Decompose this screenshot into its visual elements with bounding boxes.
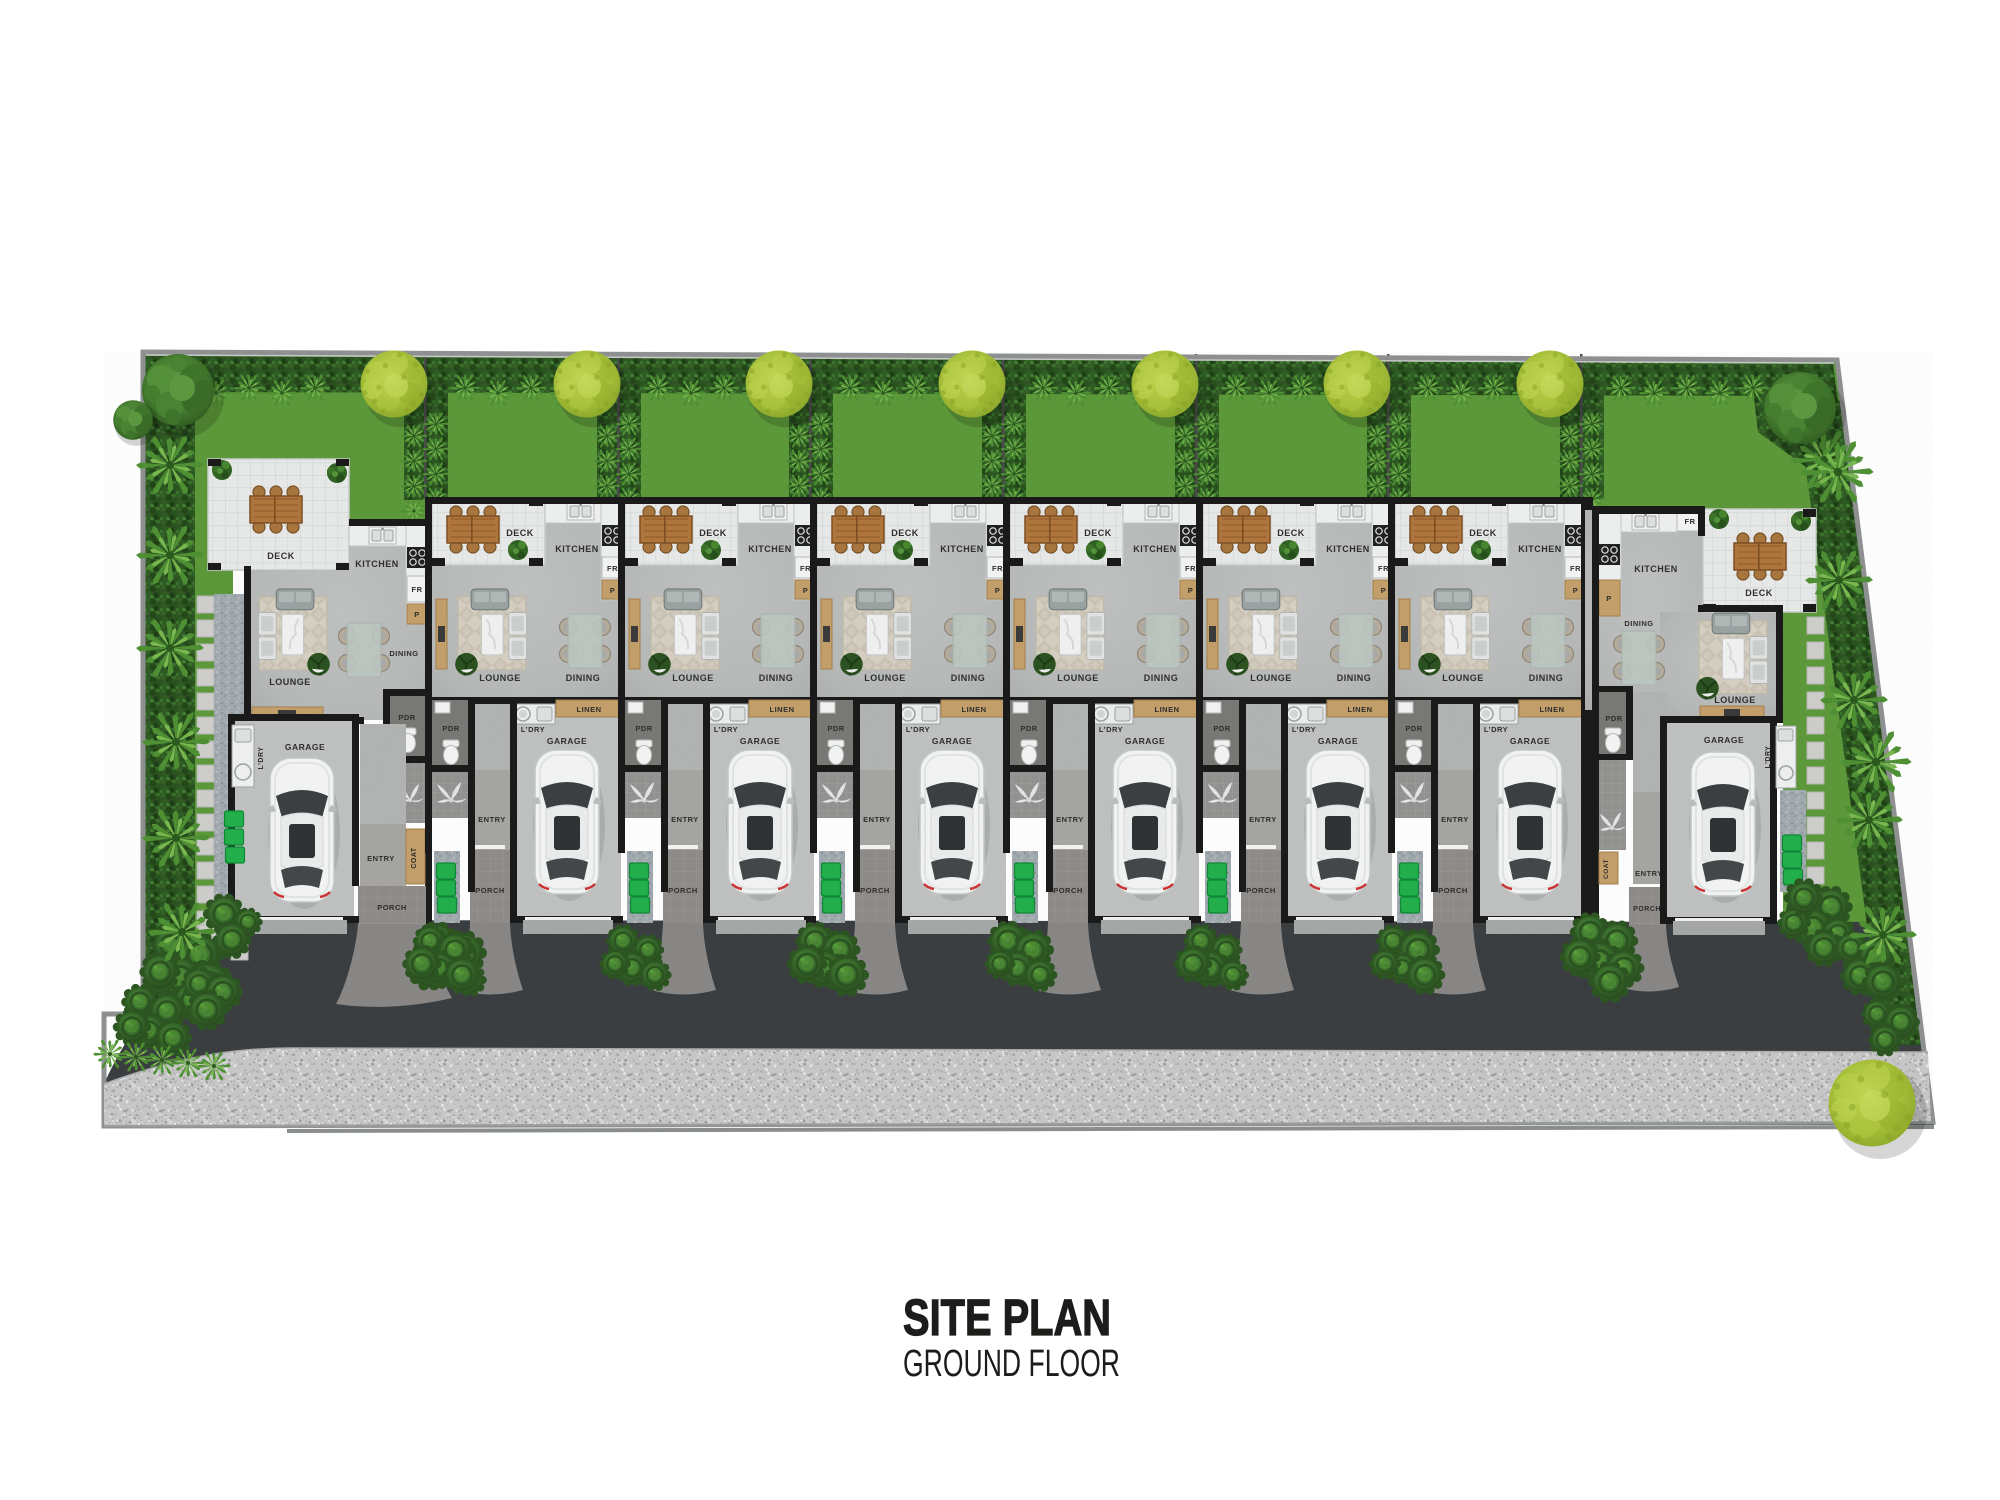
- svg-text:SITE PLAN: SITE PLAN: [903, 1289, 1111, 1346]
- svg-text:GROUND FLOOR: GROUND FLOOR: [903, 1343, 1120, 1385]
